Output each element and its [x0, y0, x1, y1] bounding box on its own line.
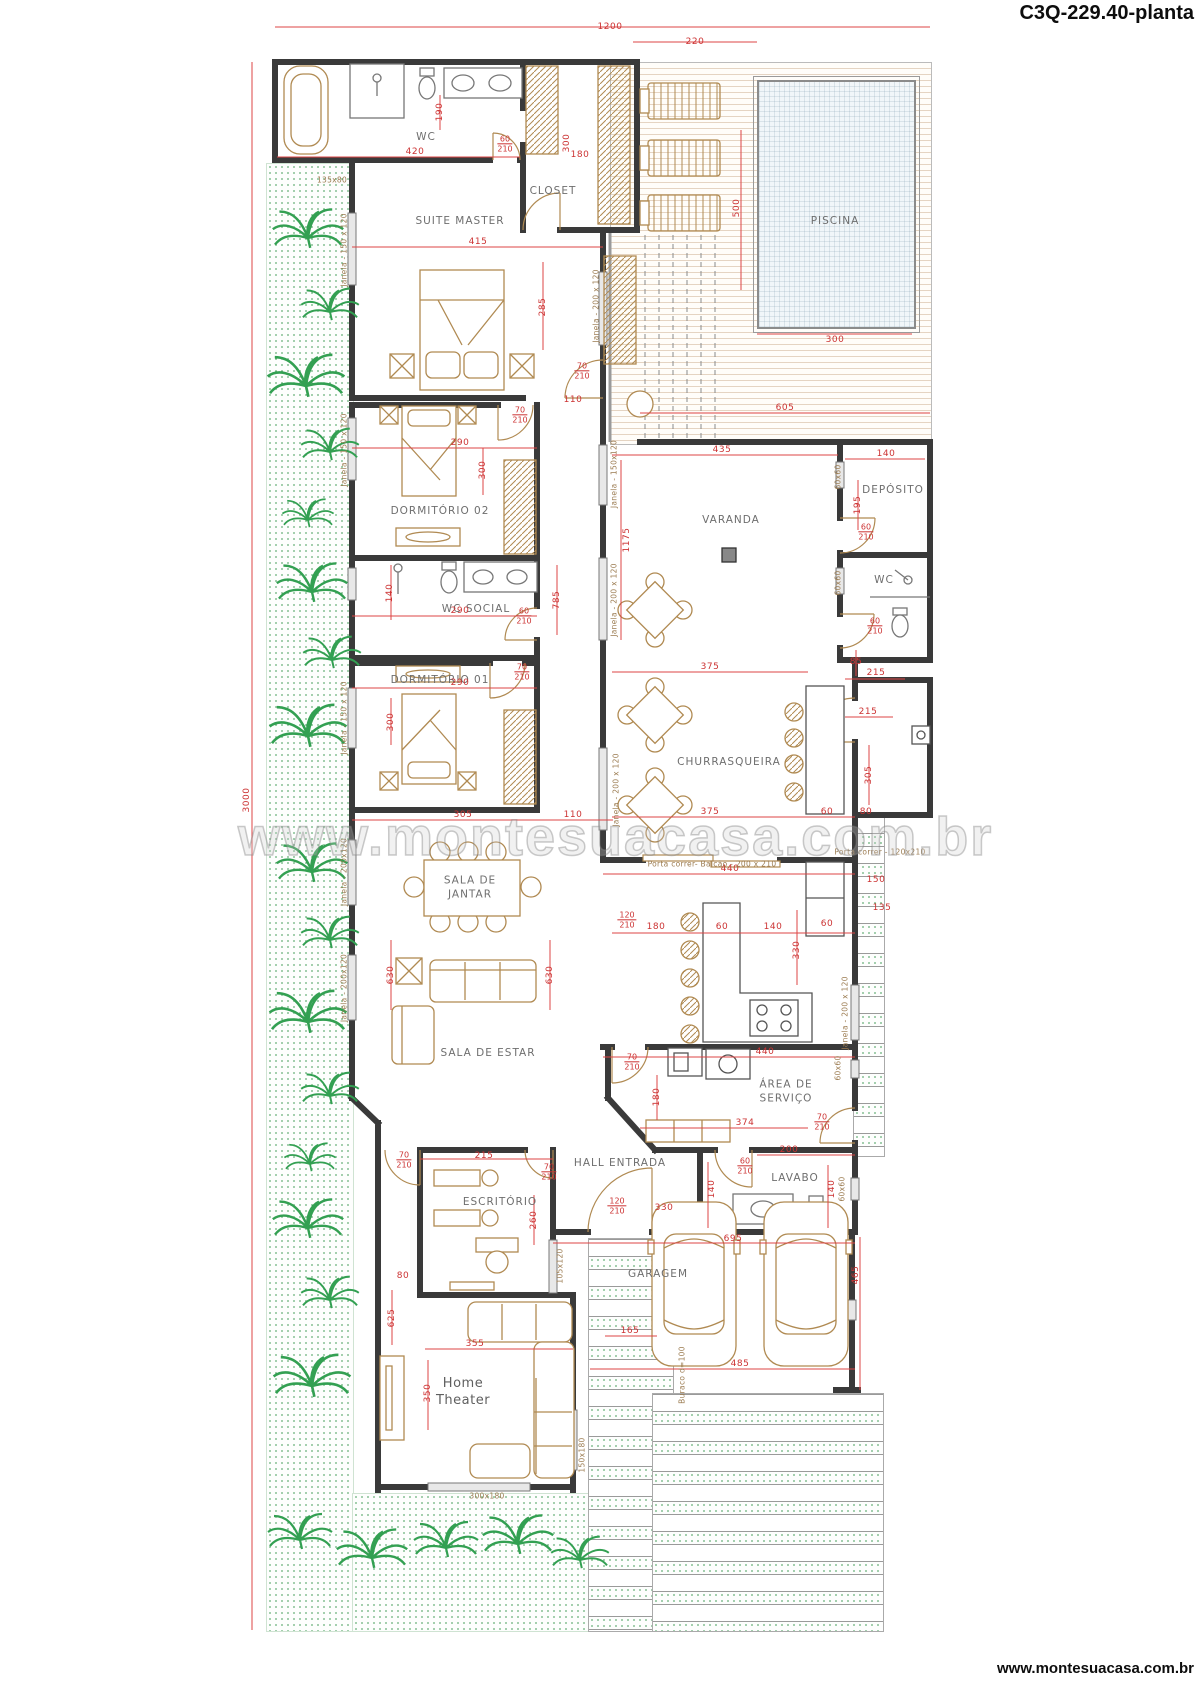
- plan-annotations: WCCLOSETSUITE MASTERDORMITÓRIO 02WC SOCI…: [0, 0, 1200, 1681]
- dimension-label: 375: [701, 807, 720, 817]
- dimension-label: 1200: [598, 22, 623, 32]
- door-size-label: 70210: [514, 662, 529, 681]
- room-label: WC SOCIAL: [442, 603, 510, 617]
- dimension-label: 180: [647, 922, 666, 932]
- room-label: CHURRASQUEIRA: [677, 756, 781, 770]
- window-label: 300x180: [469, 1492, 504, 1501]
- dimension-label: 440: [756, 1047, 775, 1057]
- door-size-label: 60210: [737, 1156, 752, 1175]
- window-label: 135x80: [317, 176, 347, 185]
- dimension-label: 330: [655, 1203, 674, 1213]
- dimension-label: 180: [571, 150, 590, 160]
- door-size-label: 60210: [516, 606, 531, 625]
- window-label: Janela - 200 x 120: [592, 269, 601, 343]
- door-size-label: 120210: [607, 1196, 626, 1215]
- dimension-label: 605: [776, 403, 795, 413]
- door-size-label: 70210: [814, 1112, 829, 1131]
- dimension-label: 140: [827, 1180, 837, 1199]
- door-size-label: 120210: [617, 910, 636, 929]
- window-label: Janela - 150x120: [610, 440, 619, 508]
- room-label: DORMITÓRIO 02: [391, 505, 490, 519]
- dimension-label: 150: [867, 875, 886, 885]
- room-label: GARAGEM: [628, 1268, 688, 1282]
- dimension-label: 80: [397, 1271, 409, 1281]
- dimension-label: 630: [545, 966, 555, 985]
- dimension-label: 140: [877, 449, 896, 459]
- room-label: Home Theater: [436, 1376, 490, 1410]
- floor-plan-page: WCCLOSETSUITE MASTERDORMITÓRIO 02WC SOCI…: [0, 0, 1200, 1681]
- room-label: WC: [874, 574, 894, 588]
- dimension-label: 140: [707, 1180, 717, 1199]
- window-label: Janela - 150 x 120: [340, 681, 349, 755]
- dimension-label: 305: [864, 766, 874, 785]
- dimension-label: 220: [686, 37, 705, 47]
- dimension-label: 625: [387, 1309, 397, 1328]
- dimension-label: 374: [736, 1118, 755, 1128]
- dimension-label: 290: [451, 606, 470, 616]
- room-label: CLOSET: [530, 185, 577, 199]
- dimension-label: 165: [621, 1326, 640, 1336]
- window-label: Janela - 200x120: [340, 838, 349, 906]
- room-label: ESCRITÓRIO: [463, 1196, 537, 1210]
- dimension-label: 140: [764, 922, 783, 932]
- dimension-label: 215: [867, 668, 886, 678]
- dimension-label: 695: [724, 1234, 743, 1244]
- room-label: HALL ENTRADA: [574, 1157, 666, 1171]
- room-label: WC: [416, 131, 436, 145]
- room-label: SALA DE JANTAR: [444, 874, 496, 901]
- dimension-label: 300: [826, 335, 845, 345]
- window-label: Janela - 200 x 120: [612, 753, 621, 827]
- room-label: ÁREA DE SERVIÇO: [759, 1078, 812, 1105]
- dimension-label: 330: [792, 941, 802, 960]
- door-size-label: 70210: [396, 1150, 411, 1169]
- dimension-label: 300: [478, 461, 488, 480]
- window-label: Porta correr- Balcão - 200 x 210: [648, 860, 777, 869]
- window-label: Janela - 200 x 120: [610, 563, 619, 637]
- dimension-label: 355: [466, 1339, 485, 1349]
- dimension-label: 415: [469, 237, 488, 247]
- dimension-label: 1175: [622, 528, 632, 553]
- dimension-label: 630: [386, 966, 396, 985]
- dimension-label: 440: [721, 864, 740, 874]
- window-label: Janela - 200 x 120: [841, 976, 850, 1050]
- dimension-label: 60: [821, 807, 833, 817]
- dimension-label: 215: [859, 707, 878, 717]
- dimension-label: 110: [564, 810, 583, 820]
- dimension-label: 180: [652, 1088, 662, 1107]
- dimension-label: 200: [780, 1145, 799, 1155]
- room-label: SALA DE ESTAR: [440, 1047, 535, 1061]
- dimension-label: 375: [701, 662, 720, 672]
- dimension-label: 785: [552, 591, 562, 610]
- door-size-label: 70210: [541, 1162, 556, 1181]
- dimension-label: 60: [821, 919, 833, 929]
- door-size-label: 70210: [512, 405, 527, 424]
- dimension-label: 80: [860, 807, 872, 817]
- door-size-label: 60210: [858, 522, 873, 541]
- dimension-label: 60: [716, 922, 728, 932]
- room-label: DEPÓSITO: [862, 484, 924, 498]
- dimension-label: 350: [423, 1384, 433, 1403]
- dimension-label: 300: [562, 134, 572, 153]
- page-title: C3Q-229.40-planta: [1019, 2, 1194, 25]
- dimension-label: 420: [406, 147, 425, 157]
- dimension-label: 195: [853, 496, 863, 515]
- dimension-label: 85: [850, 657, 862, 667]
- dimension-label: 285: [538, 298, 548, 317]
- door-size-label: 60210: [867, 616, 882, 635]
- room-label: SUITE MASTER: [415, 215, 504, 229]
- dimension-label: 135: [873, 903, 892, 913]
- room-label: VARANDA: [702, 514, 760, 528]
- window-label: 150x180: [578, 1437, 587, 1472]
- dimension-label: 500: [732, 199, 742, 218]
- window-label: Janela - 150 x 120: [340, 413, 349, 487]
- dimension-label: 260: [529, 1211, 539, 1230]
- room-label: LAVABO: [771, 1172, 819, 1186]
- door-size-label: 60210: [497, 134, 512, 153]
- dimension-label: 215: [475, 1151, 494, 1161]
- dimension-label: 110: [564, 395, 583, 405]
- room-label: PISCINA: [811, 215, 860, 229]
- site-url: www.montesuacasa.com.br: [997, 1660, 1194, 1677]
- dimension-label: 290: [451, 438, 470, 448]
- dimension-label: 3000: [242, 788, 252, 813]
- window-label: 60x60: [834, 1055, 843, 1080]
- dimension-label: 190: [435, 103, 445, 122]
- room-label: DORMITÓRIO 01: [391, 674, 490, 688]
- window-label: 60x60: [834, 570, 843, 595]
- dimension-label: 305: [454, 810, 473, 820]
- window-label: Janela - 150 x 120: [340, 213, 349, 287]
- window-label: 105x120: [556, 1248, 565, 1283]
- dimension-label: 290: [451, 678, 470, 688]
- door-size-label: 70210: [624, 1052, 639, 1071]
- window-label: 60x60: [838, 1176, 847, 1201]
- window-label: Janela - 200x120: [340, 954, 349, 1022]
- dimension-label: 485: [731, 1359, 750, 1369]
- dimension-label: 465: [851, 1266, 861, 1285]
- window-label: Buraco d=100: [678, 1346, 687, 1404]
- window-label: 60x60: [834, 464, 843, 489]
- dimension-label: 300: [386, 713, 396, 732]
- window-label: Porta correr - 120x210: [834, 848, 925, 857]
- dimension-label: 435: [713, 445, 732, 455]
- door-size-label: 70210: [574, 361, 589, 380]
- dimension-label: 140: [385, 584, 395, 603]
